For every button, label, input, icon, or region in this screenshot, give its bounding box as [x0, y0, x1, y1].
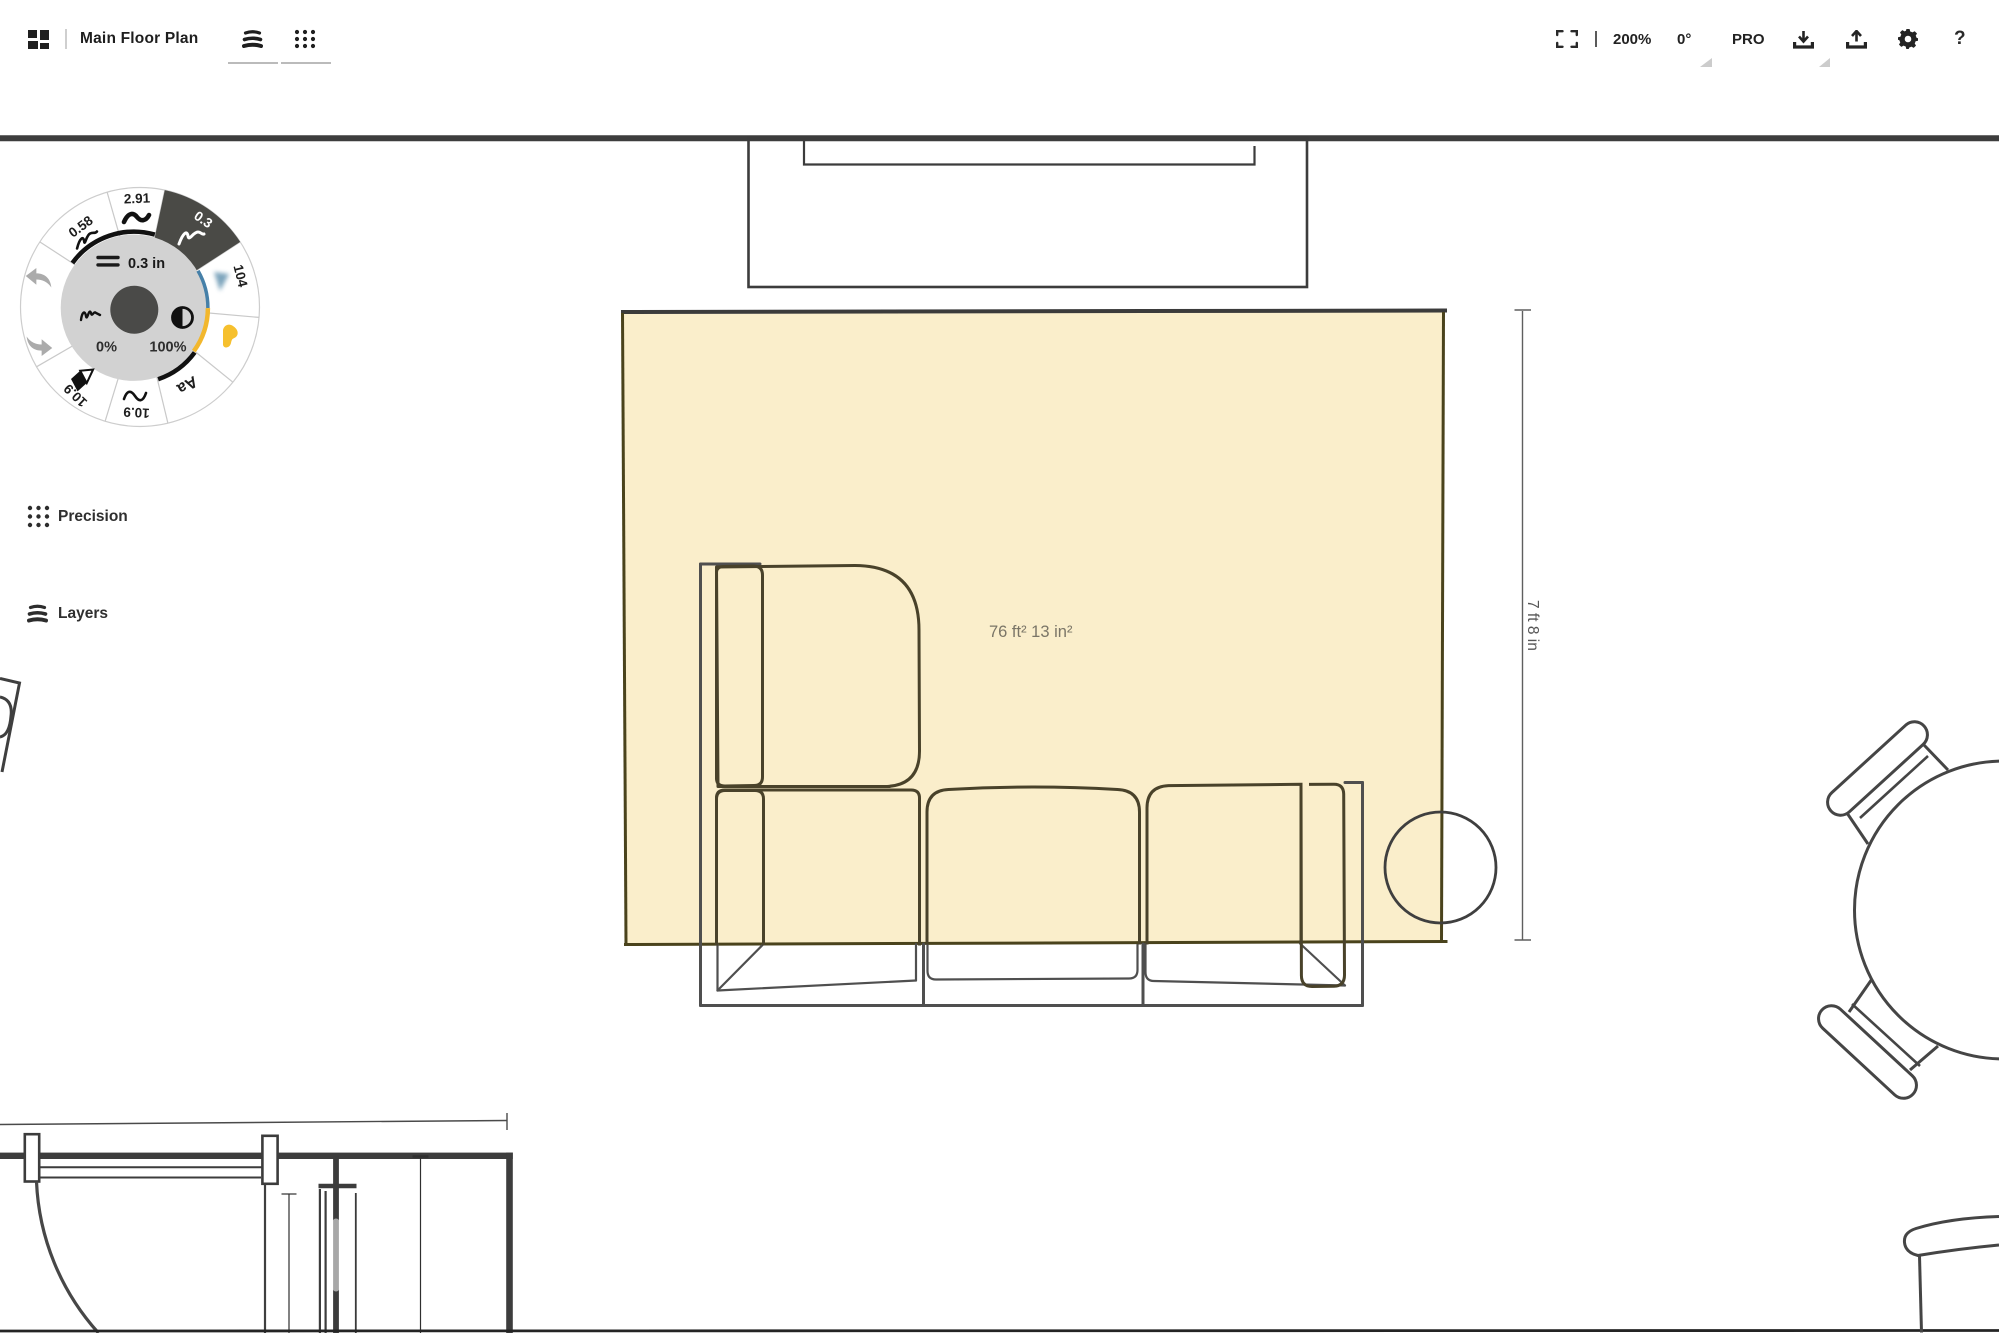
svg-text:100%: 100%: [149, 340, 186, 356]
svg-text:10.9: 10.9: [123, 404, 150, 420]
svg-text:0.3 in: 0.3 in: [128, 256, 165, 272]
svg-text:7 ft 8 in: 7 ft 8 in: [1524, 600, 1541, 651]
svg-text:0%: 0%: [96, 340, 117, 356]
svg-text:76 ft² 13 in²: 76 ft² 13 in²: [989, 623, 1073, 641]
svg-text:2.91: 2.91: [124, 191, 151, 207]
